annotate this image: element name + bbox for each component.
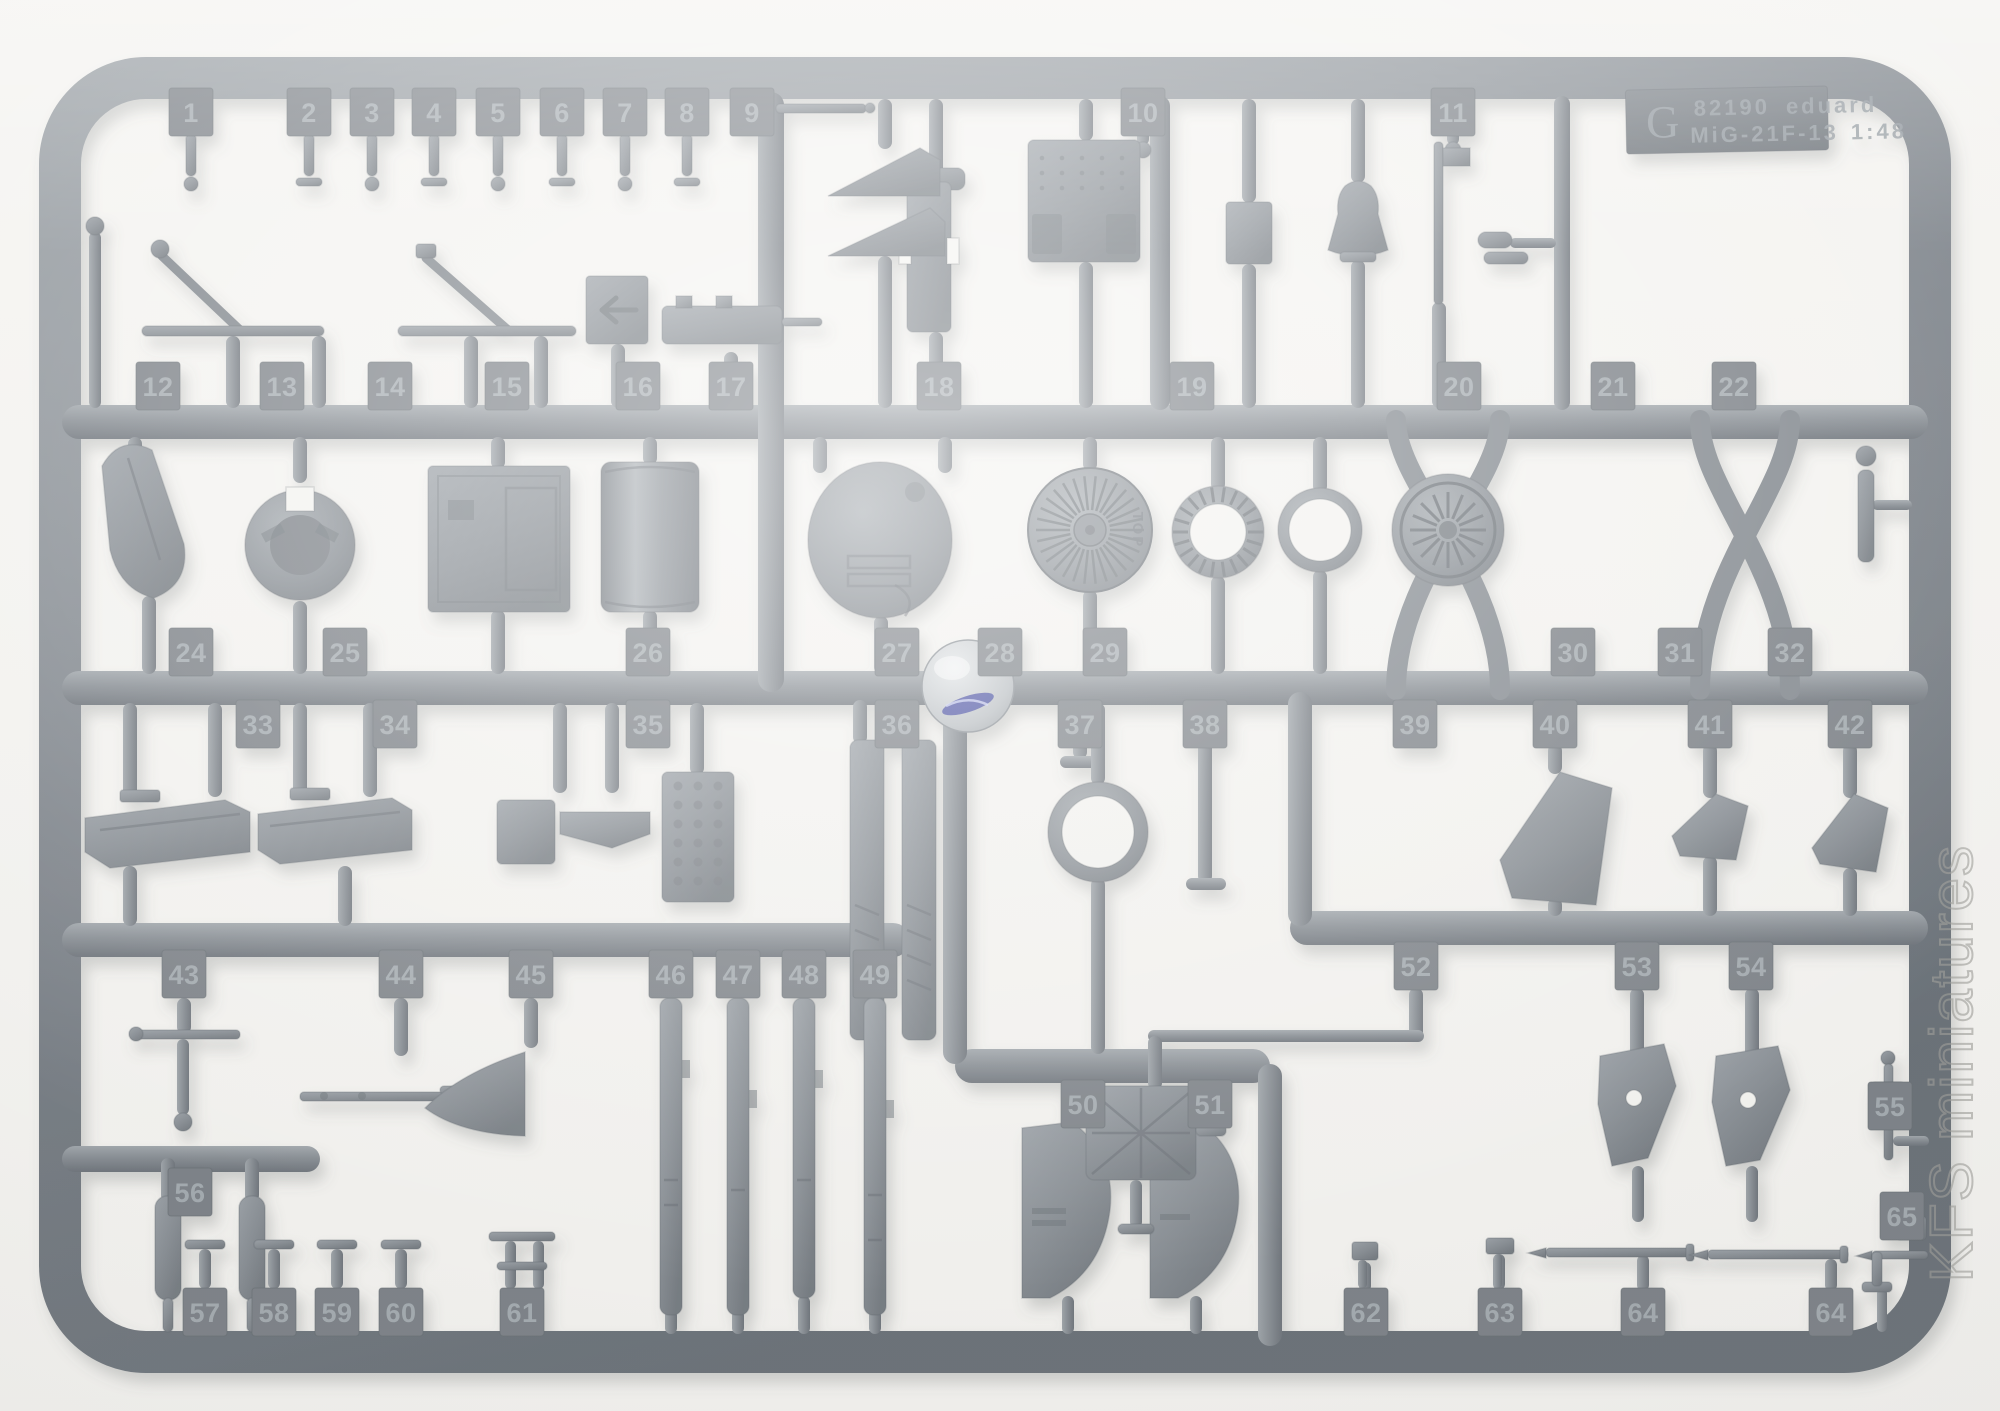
svg-text:21: 21 — [1597, 372, 1628, 402]
svg-text:64: 64 — [1627, 1298, 1658, 1328]
part-30-ribbed-ring — [1172, 486, 1264, 578]
part-number-tab-50: 50 — [1061, 1080, 1105, 1128]
part-number-tab-32: 32 — [1768, 628, 1812, 676]
svg-text:62: 62 — [1350, 1298, 1381, 1328]
parts-third-row: TOP — [102, 445, 1876, 618]
svg-text:3: 3 — [364, 98, 380, 128]
svg-text:43: 43 — [168, 960, 199, 990]
part-number-tab-64: 64 — [1621, 1288, 1665, 1336]
part-number-tab-58: 58 — [252, 1288, 296, 1336]
part-scope-a — [1478, 232, 1512, 248]
part-number-tab-16: 16 — [616, 362, 660, 410]
svg-text:16: 16 — [622, 372, 653, 402]
svg-text:65: 65 — [1886, 1202, 1917, 1232]
part-number-tab-31: 31 — [1658, 628, 1702, 676]
part-number-tab-14: 14 — [368, 362, 412, 410]
part-number-tab-17: 17 — [709, 362, 753, 410]
svg-text:39: 39 — [1399, 710, 1430, 740]
svg-text:22: 22 — [1718, 372, 1749, 402]
sprue-photo: TOP — [0, 0, 2000, 1411]
part-number-tab-6: 6 — [540, 88, 584, 136]
part-34-wing-slab — [258, 788, 412, 864]
part-number-tab-9: 9 — [730, 88, 774, 136]
svg-text:20: 20 — [1443, 372, 1474, 402]
part-number-tab-1: 1 — [169, 88, 213, 136]
svg-text:57: 57 — [189, 1298, 220, 1328]
part-24-windscreen — [102, 445, 185, 598]
part-number-tab-7: 7 — [603, 88, 647, 136]
part-number-tab-13: 13 — [260, 362, 304, 410]
svg-text:59: 59 — [321, 1298, 352, 1328]
svg-text:52: 52 — [1400, 952, 1431, 982]
part-number-tab-51: 51 — [1188, 1080, 1232, 1128]
part-number-tab-57: 57 — [183, 1288, 227, 1336]
part-number-tab-63: 63 — [1478, 1288, 1522, 1336]
part-41-wedge — [1672, 794, 1748, 860]
svg-text:29: 29 — [1089, 638, 1120, 668]
svg-text:33: 33 — [242, 710, 273, 740]
part-number-tab-56: 56 — [168, 1168, 212, 1216]
svg-text:46: 46 — [655, 960, 686, 990]
part-number-tab-35: 35 — [626, 700, 670, 748]
svg-text:50: 50 — [1067, 1090, 1098, 1120]
part-number-tab-43: 43 — [162, 950, 206, 998]
part-32-spoked-wheel — [1392, 474, 1504, 586]
part-number-tab-59: 59 — [315, 1288, 359, 1336]
part-45-nose-cone — [425, 1052, 525, 1136]
part-number-tab-47: 47 — [716, 950, 760, 998]
part-number-tab-4: 4 — [412, 88, 456, 136]
svg-text:51: 51 — [1194, 1090, 1225, 1120]
svg-text:11: 11 — [1438, 98, 1468, 128]
svg-text:56: 56 — [174, 1178, 205, 1208]
part-number-tab-15: 15 — [485, 362, 529, 410]
svg-text:34: 34 — [379, 710, 410, 740]
part-26-equipment-box — [428, 466, 570, 612]
part-number-tab-3: 3 — [350, 88, 394, 136]
svg-text:63: 63 — [1484, 1298, 1515, 1328]
part-28-oval-door — [808, 462, 952, 618]
svg-text:12: 12 — [142, 372, 173, 402]
part-number-tab-27: 27 — [875, 628, 919, 676]
svg-text:45: 45 — [515, 960, 546, 990]
svg-text:32: 32 — [1774, 638, 1805, 668]
part-number-tab-60: 60 — [379, 1288, 423, 1336]
part-number-tab-61: 61 — [500, 1288, 544, 1336]
svg-text:14: 14 — [374, 372, 405, 402]
part-number-tab-12: 12 — [136, 362, 180, 410]
part-number-tab-2: 2 — [287, 88, 331, 136]
part-number-tab-26: 26 — [626, 628, 670, 676]
svg-text:48: 48 — [788, 960, 819, 990]
parts-fourth-row — [85, 740, 1888, 1040]
part-number-tab-46: 46 — [649, 950, 693, 998]
svg-text:28: 28 — [984, 638, 1015, 668]
part-pennant-pole — [1434, 142, 1470, 304]
part-number-tab-18: 18 — [917, 362, 961, 410]
svg-text:24: 24 — [175, 638, 206, 668]
svg-text:2: 2 — [301, 98, 317, 128]
part-scope-b — [1484, 252, 1528, 264]
plate-line-1: 82190eduard — [1693, 92, 1877, 121]
part-number-tab-39: 39 — [1393, 700, 1437, 748]
part-number-tab-37: 37 — [1058, 700, 1102, 748]
svg-text:64: 64 — [1815, 1298, 1846, 1328]
part-number-tab-5: 5 — [476, 88, 520, 136]
part-number-tab-40: 40 — [1533, 700, 1577, 748]
label-plate: G 82190eduard MiG-21F-131:48 — [1625, 84, 1907, 154]
part-number-tab-54: 54 — [1729, 942, 1773, 990]
part-number-tab-33: 33 — [236, 700, 280, 748]
part-53-bracket — [1598, 1044, 1676, 1222]
svg-text:44: 44 — [385, 960, 416, 990]
svg-text:25: 25 — [329, 638, 360, 668]
part-gun-slab — [662, 296, 822, 344]
part-27-cylinder — [601, 462, 699, 612]
part-number-tab-24: 24 — [169, 628, 213, 676]
part-43-lever — [129, 1027, 240, 1131]
part-number-tab-21: 21 — [1591, 362, 1635, 410]
svg-text:60: 60 — [385, 1298, 416, 1328]
svg-text:37: 37 — [1064, 710, 1095, 740]
svg-text:49: 49 — [859, 960, 890, 990]
part-number-tab-45: 45 — [509, 950, 553, 998]
part-36-louver-plate — [662, 772, 734, 902]
part-25-intake-ring — [245, 487, 355, 600]
svg-text:53: 53 — [1621, 952, 1652, 982]
part-number-tab-38: 38 — [1183, 700, 1227, 748]
part-number-tab-25: 25 — [323, 628, 367, 676]
svg-text:26: 26 — [632, 638, 663, 668]
part-number-tab-34: 34 — [373, 700, 417, 748]
part-number-tab-29: 29 — [1083, 628, 1127, 676]
part-number-tab-8: 8 — [665, 88, 709, 136]
svg-text:10: 10 — [1127, 98, 1158, 128]
part-42-wedge — [1812, 794, 1888, 872]
svg-text:35: 35 — [632, 710, 663, 740]
svg-text:31: 31 — [1664, 638, 1695, 668]
part-number-tab-41: 41 — [1688, 700, 1732, 748]
parts-p itot-rods — [1528, 1244, 1928, 1263]
svg-text:9: 9 — [744, 98, 760, 128]
part-bell-shape — [1328, 181, 1388, 262]
part-number-tab-19: 19 — [1170, 362, 1214, 410]
svg-text:38: 38 — [1189, 710, 1220, 740]
svg-text:55: 55 — [1874, 1092, 1905, 1122]
part-small-box — [1226, 202, 1272, 264]
part-38-panel — [902, 740, 936, 1040]
part-cockpit-tub — [1028, 140, 1140, 262]
runner-stubs — [89, 99, 1929, 1334]
part-number-tab-22: 22 — [1712, 362, 1756, 410]
svg-text:8: 8 — [679, 98, 695, 128]
parts-second-row — [86, 140, 1528, 344]
part-number-tab-52: 52 — [1394, 942, 1438, 990]
part-40-scoop — [1500, 772, 1612, 905]
svg-text:18: 18 — [923, 372, 954, 402]
svg-text:27: 27 — [881, 638, 912, 668]
svg-text:4: 4 — [426, 98, 442, 128]
part-number-tab-30: 30 — [1551, 628, 1595, 676]
part-number-tab-11: 11 — [1431, 88, 1475, 136]
part-35-brackets — [497, 800, 650, 864]
svg-text:47: 47 — [722, 960, 753, 990]
part-number-tab-20: 20 — [1437, 362, 1481, 410]
svg-text:41: 41 — [1694, 710, 1725, 740]
parts-46-49-strips — [660, 998, 894, 1315]
svg-text:42: 42 — [1834, 710, 1865, 740]
parts-62-63-figures — [1352, 1238, 1514, 1288]
svg-text:1: 1 — [183, 98, 199, 128]
top-marking: TOP — [1129, 512, 1146, 549]
svg-text:58: 58 — [258, 1298, 289, 1328]
part-29-turbine-disc: TOP — [1028, 468, 1152, 592]
part-54-bracket — [1712, 1046, 1790, 1222]
part-right-edge-pin — [1856, 446, 1876, 562]
svg-text:6: 6 — [554, 98, 570, 128]
plate-line-2: MiG-21F-131:48 — [1690, 118, 1907, 148]
svg-text:54: 54 — [1735, 952, 1766, 982]
part-number-tab-64: 64 — [1809, 1288, 1853, 1336]
part-number-tab-36: 36 — [875, 700, 919, 748]
part-number-tab-28: 28 — [978, 628, 1022, 676]
part-number-tab-65: 65 — [1880, 1192, 1924, 1240]
part-number-tab-44: 44 — [379, 950, 423, 998]
part-number-tab-42: 42 — [1828, 700, 1872, 748]
svg-text:15: 15 — [491, 372, 522, 402]
svg-text:7: 7 — [617, 98, 633, 128]
sprue-drawing: TOP — [0, 0, 2000, 1411]
svg-text:40: 40 — [1539, 710, 1570, 740]
svg-text:36: 36 — [881, 710, 912, 740]
part-number-tab-10: 10 — [1121, 88, 1165, 136]
svg-text:5: 5 — [490, 98, 506, 128]
svg-text:61: 61 — [506, 1298, 537, 1328]
part-number-tab-49: 49 — [853, 950, 897, 998]
part-33-wing-slab — [85, 790, 250, 868]
svg-text:30: 30 — [1557, 638, 1588, 668]
part-number-tab-55: 55 — [1868, 1082, 1912, 1130]
part-arrow-plate — [586, 276, 648, 344]
part-31-plain-ring — [1278, 488, 1362, 572]
svg-text:13: 13 — [266, 372, 297, 402]
sprue-letter: G — [1645, 96, 1679, 148]
part-number-tab-62: 62 — [1344, 1288, 1388, 1336]
svg-text:19: 19 — [1176, 372, 1207, 402]
part-number-tab-53: 53 — [1615, 942, 1659, 990]
part-number-tab-48: 48 — [782, 950, 826, 998]
svg-text:17: 17 — [715, 372, 746, 402]
part-39-large-ring — [1048, 782, 1148, 882]
